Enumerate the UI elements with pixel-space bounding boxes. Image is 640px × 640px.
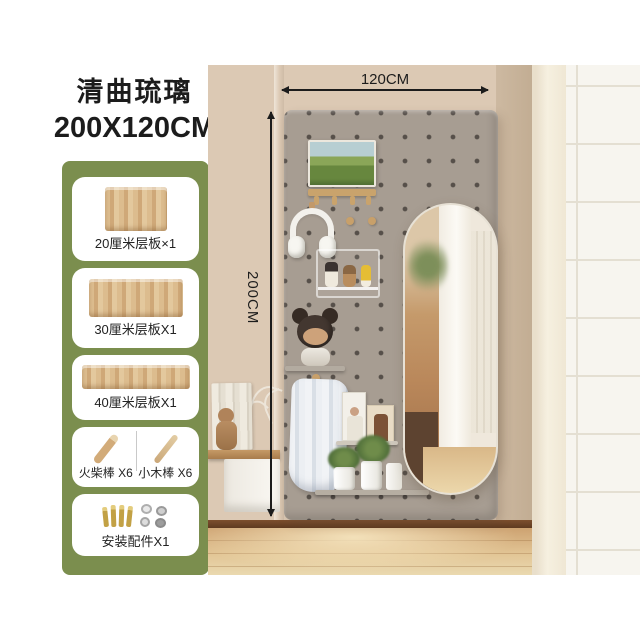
- component-label: 火柴棒 X6: [79, 466, 133, 481]
- wood-rod-image: [153, 434, 179, 464]
- component-label: 安装配件X1: [102, 534, 170, 549]
- wood-peg: [368, 217, 376, 225]
- tiled-wall: [566, 65, 640, 575]
- rail-peg: [332, 196, 337, 205]
- mickey-plush: [292, 308, 340, 368]
- component-card-40cm-board: 40厘米层板X1: [72, 355, 199, 420]
- arched-mirror: [403, 203, 498, 495]
- board-20cm-image: [105, 187, 167, 231]
- component-card-rods: 火柴棒 X6 小木棒 X6: [72, 427, 199, 487]
- arrowhead-down-icon: [267, 509, 275, 517]
- board-40cm-image: [82, 365, 190, 389]
- hardware-image: [103, 501, 169, 531]
- washers-image: [139, 503, 169, 529]
- duck-figurine: [361, 265, 371, 287]
- component-label: 30厘米层板X1: [94, 322, 176, 337]
- mirror-reflection-plant: [408, 237, 448, 295]
- arrowhead-up-icon: [267, 111, 275, 119]
- wood-floor: [208, 528, 532, 575]
- component-label: 40厘米层板X1: [94, 395, 176, 410]
- height-dimension-arrow: [270, 112, 272, 516]
- figurine-display-shelf: [316, 249, 380, 298]
- potted-plant: [356, 435, 390, 463]
- product-listing-image: 清曲琉璃 200X120CM 20厘米层板×1 30厘米层板X1 40厘米层板X…: [0, 0, 640, 640]
- height-dimension-label: 200CM: [244, 271, 261, 324]
- doll-figurine: [325, 262, 338, 287]
- small-shelf: [285, 366, 345, 371]
- wall-pillar: [532, 65, 566, 575]
- width-dimension-label: 120CM: [282, 71, 488, 88]
- plant-pot: [334, 467, 355, 490]
- product-title: 清曲琉璃 200X120CM: [52, 74, 217, 146]
- component-card-20cm-board: 20厘米层板×1: [72, 177, 199, 261]
- screws-image: [103, 505, 132, 527]
- card-divider: [136, 431, 137, 471]
- room-photo: 120CM 200CM: [208, 65, 640, 575]
- rail-peg: [350, 196, 355, 205]
- components-panel: 20厘米层板×1 30厘米层板X1 40厘米层板X1 火柴棒 X6 小木棒 X6: [62, 161, 209, 575]
- right-wall-edge: [496, 65, 532, 523]
- product-size-text: 200X120CM: [52, 110, 217, 146]
- matchstick-rod-image: [93, 433, 120, 465]
- mirror-reflection-floor: [423, 447, 496, 493]
- width-dimension-arrow: [282, 89, 488, 91]
- plant-pot: [361, 461, 382, 490]
- white-container: [386, 463, 402, 490]
- product-name-text: 清曲琉璃: [52, 74, 217, 110]
- component-card-30cm-board: 30厘米层板X1: [72, 268, 199, 348]
- teddy-bear: [216, 408, 237, 450]
- landscape-picture: [308, 140, 376, 187]
- skirting-board: [208, 520, 532, 528]
- magazine: [342, 392, 366, 441]
- board-30cm-image: [89, 279, 183, 317]
- mirror-reflection-glass-cabinet: [471, 231, 496, 433]
- component-label: 小木棒 X6: [138, 466, 192, 481]
- rods-image: [76, 433, 195, 465]
- component-card-hardware: 安装配件X1: [72, 494, 199, 556]
- wood-peg-rail: [308, 189, 376, 196]
- bear-figurine: [343, 265, 356, 287]
- wood-peg: [346, 217, 354, 225]
- rail-peg: [366, 196, 371, 205]
- component-label: 20厘米层板×1: [95, 236, 176, 251]
